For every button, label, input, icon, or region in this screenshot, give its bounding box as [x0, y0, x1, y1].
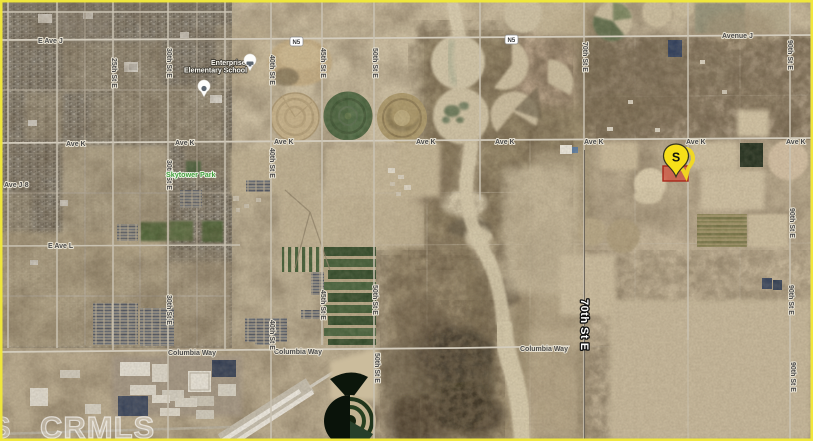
svg-text:Columbia Way: Columbia Way: [520, 346, 568, 353]
svg-text:E Ave J: E Ave J: [38, 38, 63, 45]
svg-text:Ave K: Ave K: [416, 139, 436, 146]
svg-text:Ave K: Ave K: [584, 139, 604, 146]
svg-text:Ave K: Ave K: [66, 141, 86, 148]
svg-text:Ave K: Ave K: [495, 139, 515, 146]
svg-text:50th St E: 50th St E: [371, 285, 378, 315]
svg-text:50th St E: 50th St E: [373, 353, 380, 383]
svg-text:N5: N5: [293, 40, 301, 46]
svg-text:Columbia Way: Columbia Way: [274, 349, 322, 356]
svg-text:Ave K: Ave K: [786, 139, 806, 146]
svg-text:40th St E: 40th St E: [268, 320, 275, 350]
svg-text:25th St E: 25th St E: [110, 58, 117, 88]
svg-text:S: S: [672, 151, 680, 165]
svg-text:N5: N5: [508, 38, 516, 44]
svg-text:90th St E: 90th St E: [789, 362, 796, 392]
svg-text:Ave J-8: Ave J-8: [4, 182, 29, 189]
svg-text:90th St E: 90th St E: [786, 40, 793, 70]
svg-text:30th St E: 30th St E: [165, 295, 172, 325]
svg-text:Skytower Park: Skytower Park: [166, 170, 216, 179]
svg-text:45th St E: 45th St E: [319, 48, 326, 78]
svg-text:45th St E: 45th St E: [319, 290, 326, 320]
svg-text:Ave K: Ave K: [274, 139, 294, 146]
svg-text:CRMLS: CRMLS: [40, 410, 155, 441]
svg-text:E Ave L: E Ave L: [48, 243, 74, 250]
svg-text:50th St E: 50th St E: [371, 48, 378, 78]
svg-text:70th St E: 70th St E: [578, 299, 590, 351]
svg-text:90th St E: 90th St E: [787, 285, 794, 315]
svg-text:Avenue J: Avenue J: [722, 33, 753, 40]
svg-text:Elementary School: Elementary School: [184, 68, 247, 75]
svg-text:Enterprise: Enterprise: [211, 60, 246, 67]
svg-text:90th St E: 90th St E: [788, 208, 795, 238]
svg-text:Columbia Way: Columbia Way: [168, 350, 216, 357]
svg-text:70th St E: 70th St E: [581, 42, 588, 72]
svg-text:Ave K: Ave K: [686, 139, 706, 146]
svg-text:40th St E: 40th St E: [268, 148, 275, 178]
svg-text:30th St E: 30th St E: [165, 48, 172, 78]
svg-text:Ave K: Ave K: [175, 140, 195, 147]
svg-text:40th St E: 40th St E: [268, 55, 275, 85]
